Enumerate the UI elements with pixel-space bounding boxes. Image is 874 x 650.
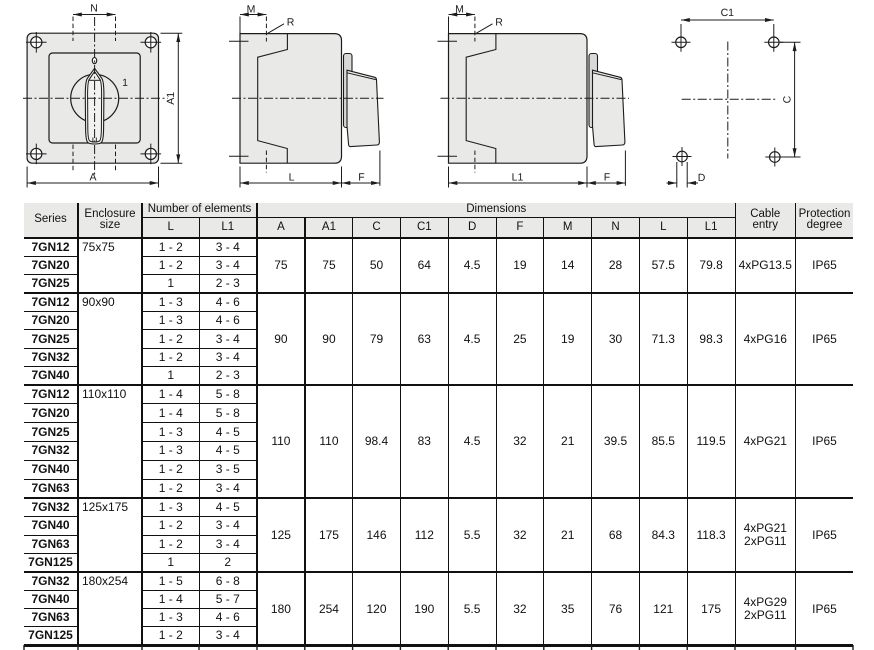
svg-text:L: L bbox=[289, 172, 295, 184]
svg-text:N: N bbox=[90, 3, 98, 15]
svg-text:M: M bbox=[247, 4, 256, 16]
svg-text:A: A bbox=[89, 172, 96, 184]
svg-text:M: M bbox=[455, 4, 464, 16]
svg-text:C1: C1 bbox=[721, 7, 735, 19]
svg-text:A1: A1 bbox=[165, 92, 177, 105]
svg-text:R: R bbox=[495, 17, 503, 29]
svg-text:D: D bbox=[698, 172, 706, 184]
svg-text:1: 1 bbox=[122, 77, 128, 89]
svg-text:L1: L1 bbox=[512, 172, 524, 184]
svg-text:F: F bbox=[604, 172, 610, 184]
svg-text:R: R bbox=[287, 17, 295, 29]
svg-text:F: F bbox=[358, 172, 364, 184]
svg-text:C: C bbox=[781, 95, 793, 103]
